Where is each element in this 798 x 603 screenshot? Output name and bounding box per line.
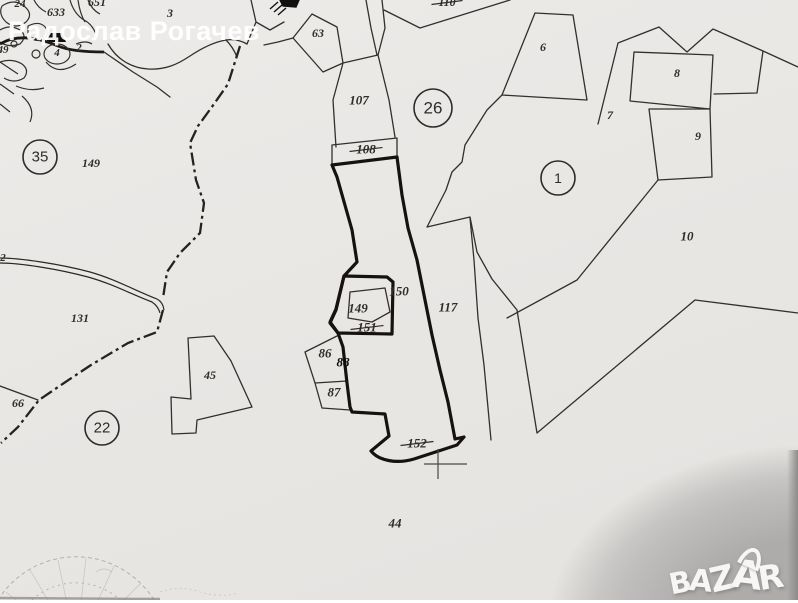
svg-text:44: 44 [388, 516, 403, 531]
svg-text:8: 8 [674, 66, 680, 80]
parcel-label-131: 131 [71, 311, 89, 325]
paper-bottom-edge [0, 598, 160, 599]
svg-text:35: 35 [32, 149, 49, 166]
parcel-label-7: 7 [607, 108, 614, 122]
parcel-label-63: 63 [312, 26, 324, 40]
bazar-logo: B A Z A R [669, 557, 785, 596]
svg-text:87: 87 [328, 385, 342, 400]
svg-text:4: 4 [53, 47, 60, 59]
svg-text:88: 88 [337, 355, 351, 370]
parcel-label-86: 86 [319, 346, 333, 361]
parcel-label-22: 22 [85, 411, 119, 445]
svg-text:651: 651 [88, 0, 106, 9]
parcel-label-2: 2 [0, 252, 6, 264]
svg-text:10: 10 [681, 229, 695, 244]
photographer-watermark: Радослав Рогачев [8, 16, 260, 47]
parcel-label-110: 110 [431, 0, 462, 9]
parcel-label-26: 26 [414, 89, 452, 127]
svg-text:149: 149 [82, 156, 100, 170]
svg-text:7: 7 [607, 108, 614, 122]
parcel-label-4: 4 [44, 44, 70, 64]
paper-right-edge [787, 450, 798, 600]
svg-text:26: 26 [424, 99, 443, 118]
parcel-label-149: 149 [348, 301, 368, 316]
parcel-label-107: 107 [349, 93, 369, 108]
parcel-label-10: 10 [681, 229, 695, 244]
svg-text:131: 131 [71, 311, 89, 325]
parcel-label-35: 35 [23, 140, 57, 174]
svg-text:149: 149 [348, 301, 368, 316]
svg-text:107: 107 [349, 93, 369, 108]
svg-text:24: 24 [14, 0, 27, 10]
road-double-line [0, 258, 164, 313]
parcel-label-108: 108 [350, 142, 383, 157]
parcel-label-149: 149 [82, 156, 100, 170]
parcel-label-150: 150 [389, 284, 409, 299]
svg-text:1: 1 [554, 170, 562, 186]
svg-text:63: 63 [312, 26, 324, 40]
parcel-label-87: 87 [328, 385, 342, 400]
svg-text:117: 117 [439, 300, 458, 315]
cadastral-dash-line [1, 46, 240, 443]
parcel-label-44: 44 [388, 516, 403, 531]
map-photo: 2463365134942631071082611067891103514921… [0, 0, 798, 600]
parcel-label-152: 152 [401, 436, 434, 451]
parcel-label-9: 9 [695, 129, 701, 143]
parcel-label-651: 651 [88, 0, 106, 9]
parcel-label-45: 45 [203, 368, 216, 382]
svg-text:66: 66 [12, 396, 24, 410]
svg-text:9: 9 [695, 129, 701, 143]
bazar-letter: R [756, 561, 786, 594]
svg-text:22: 22 [94, 420, 111, 437]
parcel-label-24: 24 [14, 0, 27, 10]
parcel-label-8: 8 [674, 66, 680, 80]
svg-text:6: 6 [540, 40, 546, 54]
parcel-label-117: 117 [439, 300, 458, 315]
hatched-symbol [270, 0, 299, 15]
svg-text:2: 2 [0, 252, 6, 264]
svg-text:45: 45 [203, 368, 216, 382]
parcel-label-6: 6 [540, 40, 546, 54]
svg-text:150: 150 [389, 284, 409, 299]
svg-text:86: 86 [319, 346, 333, 361]
parcel-label-1: 1 [541, 161, 575, 195]
parcel-label-88: 88 [337, 355, 351, 370]
compass-sketch [0, 557, 238, 600]
parcel-label-66: 66 [12, 396, 24, 410]
